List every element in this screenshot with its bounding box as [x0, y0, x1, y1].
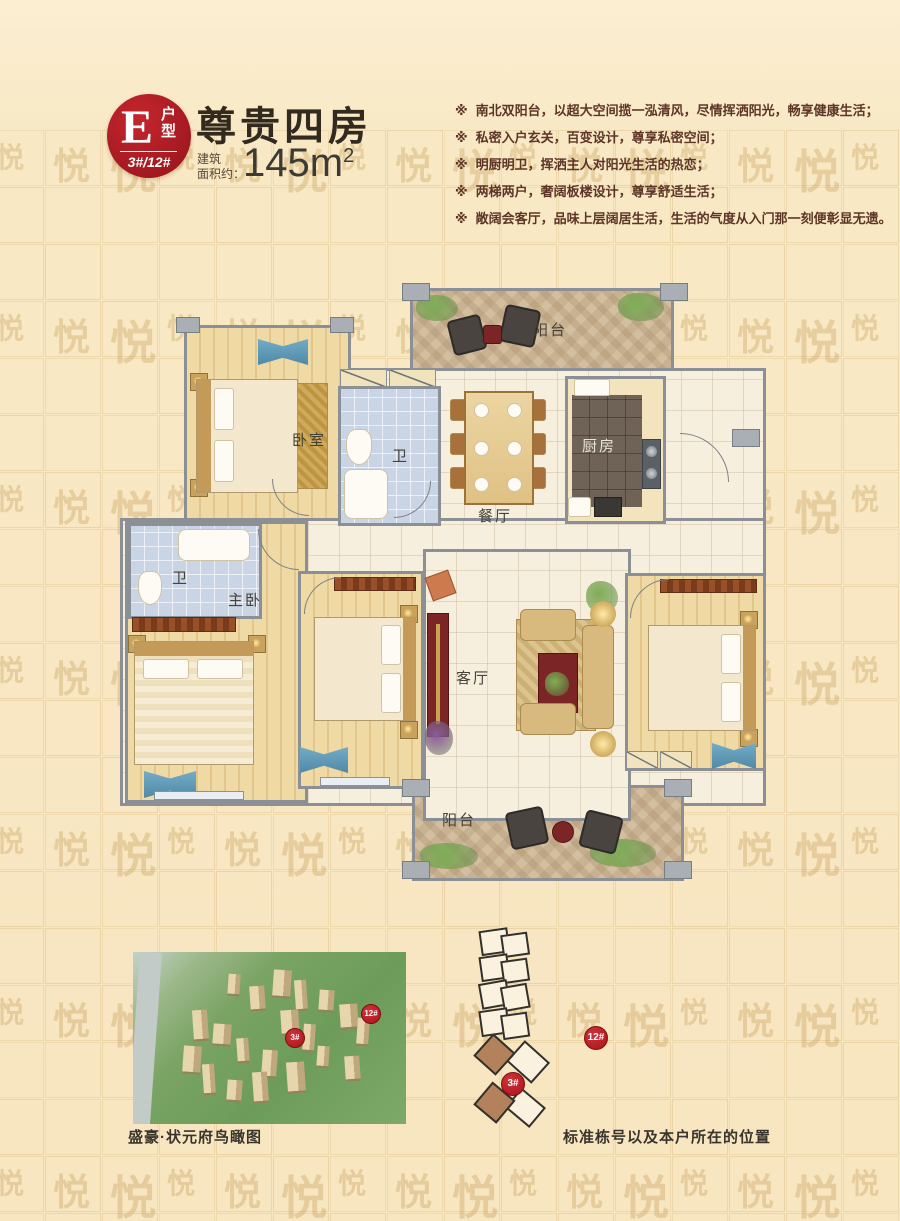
building-tower: [192, 1010, 209, 1042]
building-tower: [212, 1023, 231, 1046]
brochure-page: 悦悦悦悦悦悦悦悦悦悦悦悦悦悦悦悦悦悦悦悦悦悦悦悦悦悦悦悦悦悦悦悦悦悦悦悦悦悦悦悦…: [0, 0, 900, 1221]
room-label: 客厅: [456, 667, 490, 688]
balcony-table: [483, 325, 502, 344]
feature-item: ※明厨明卫，挥洒主人对阳光生活的热恋；: [455, 154, 875, 174]
building-tower: [286, 1061, 306, 1093]
master-wardrobe: [132, 617, 236, 632]
plant: [618, 293, 664, 321]
window: [154, 791, 244, 800]
feature-bullet-icon: ※: [455, 103, 468, 118]
building-tower: [226, 1080, 242, 1103]
building-tower: [316, 1046, 330, 1069]
feature-bullet-icon: ※: [455, 157, 468, 172]
plate: [507, 441, 522, 456]
balcony-chair: [504, 805, 549, 850]
wall-pier: [402, 861, 430, 879]
flower-pot: [425, 721, 453, 755]
building-tower: [227, 974, 241, 997]
room-label: 厨房: [582, 435, 616, 456]
bed: [196, 379, 298, 493]
pillow: [721, 682, 741, 722]
feature-item: ※两梯两户，奢阔板楼设计，尊享舒适生活；: [455, 181, 875, 201]
aerial-caption: 盛豪·状元府鸟瞰图: [128, 1126, 262, 1147]
bathtub: [344, 469, 388, 519]
area-label: 建筑面积约：: [197, 152, 245, 182]
window: [320, 777, 390, 786]
fridge: [568, 497, 591, 517]
room-label: 卫: [392, 445, 409, 466]
badge-building-numbers: 3#/12#: [107, 154, 191, 170]
burner: [646, 468, 657, 479]
unit-type-badge: E 户型 3#/12#: [107, 94, 191, 178]
pillow: [381, 625, 401, 665]
bed: [648, 625, 756, 731]
master-bed: [134, 641, 254, 765]
building-tower: [318, 990, 334, 1013]
plate: [474, 477, 489, 492]
floor-plan: 阳台 卧室 卫: [120, 283, 790, 883]
plate: [507, 477, 522, 492]
room-label: 餐厅: [478, 505, 512, 526]
toilet: [346, 429, 372, 465]
tv-cabinet: [427, 613, 449, 737]
wall-pier: [660, 283, 688, 301]
bed-headboard: [403, 618, 415, 720]
road: [133, 952, 162, 1124]
siteplan-caption: 标准栋号以及本户所在的位置: [563, 1126, 771, 1147]
sofa-seat: [520, 703, 576, 735]
bathtub: [178, 529, 250, 561]
feature-bullet-icon: ※: [455, 211, 468, 226]
bed: [314, 617, 416, 721]
wall-pier: [330, 317, 354, 333]
nightstand: [400, 721, 418, 739]
burner: [646, 446, 657, 457]
bed-headboard: [197, 380, 211, 492]
feature-bullet-icon: ※: [455, 184, 468, 199]
curtain-valance: [660, 579, 757, 593]
building-tower: [252, 1072, 269, 1104]
wall-pier: [664, 779, 692, 797]
footprint-unit-highlight: [473, 1033, 515, 1075]
pillow: [381, 673, 401, 713]
wardrobe-symbol: [660, 751, 692, 769]
area-superscript: 2: [343, 145, 354, 167]
siteplan-marker-3: 3#: [501, 1072, 525, 1096]
aerial-view-image: 12#3#: [133, 952, 406, 1124]
feature-item: ※敞阔会客厅，品味上层阔居生活，生活的气度从入门那一刻便彰显无遗。: [455, 208, 875, 228]
building-tower: [294, 980, 308, 1012]
building-tower: [339, 1003, 359, 1029]
aerial-marker-3: 3#: [285, 1028, 305, 1048]
room-label: 卫: [172, 567, 189, 588]
dining-table: [464, 391, 534, 505]
pillow: [143, 659, 189, 679]
feature-item: ※南北双阳台，以超大空间揽一泓清风，尽情挥洒阳光，畅享健康生活；: [455, 100, 875, 120]
kitchen-sink: [574, 379, 610, 396]
site-plan: 12#3#标准栋号以及本户所在的位置: [480, 928, 800, 1168]
wall-pier: [664, 861, 692, 879]
plate: [474, 441, 489, 456]
feature-item: ※私密入户玄关，百变设计，尊享私密空间；: [455, 127, 875, 147]
sofa-long: [582, 625, 614, 729]
toilet: [138, 571, 162, 605]
unit-type-label: 户型: [161, 106, 177, 140]
tv: [436, 624, 440, 724]
building-tower: [202, 1064, 216, 1096]
oven: [594, 497, 622, 517]
room-label: 阳台: [442, 809, 476, 830]
wardrobe-symbol: [626, 751, 658, 769]
area-value: 145m2: [243, 141, 354, 186]
room-label: 卧室: [292, 429, 326, 450]
room-label: 阳台: [533, 319, 567, 340]
building-tower: [272, 969, 292, 998]
unit-letter: E: [121, 100, 153, 155]
pillow: [214, 440, 234, 482]
floor-lamp: [590, 601, 616, 627]
building-tower: [182, 1045, 202, 1074]
room-label: 主卧: [228, 589, 262, 610]
building-tower: [249, 986, 266, 1012]
siteplan-marker-12: 12#: [584, 1026, 608, 1050]
badge-divider: [120, 151, 177, 152]
plate: [474, 403, 489, 418]
bed-headboard: [135, 642, 253, 656]
stove: [642, 439, 661, 489]
pillow: [721, 634, 741, 674]
wall-pier: [176, 317, 200, 333]
table-flowers: [545, 672, 569, 696]
plate: [507, 403, 522, 418]
wall-pier: [402, 283, 430, 301]
balcony-table: [552, 821, 574, 843]
wall-pier: [402, 779, 430, 797]
wall-pier: [732, 429, 760, 447]
curtain-valance: [334, 577, 416, 591]
floor-lamp: [590, 731, 616, 757]
bed-headboard: [743, 626, 755, 730]
building-tower: [344, 1056, 361, 1082]
pillow: [197, 659, 243, 679]
feature-bullet-icon: ※: [455, 130, 468, 145]
pillow: [214, 388, 234, 430]
sofa-seat: [520, 609, 576, 641]
building-tower: [236, 1038, 250, 1064]
aerial-marker-12: 12#: [361, 1004, 381, 1024]
